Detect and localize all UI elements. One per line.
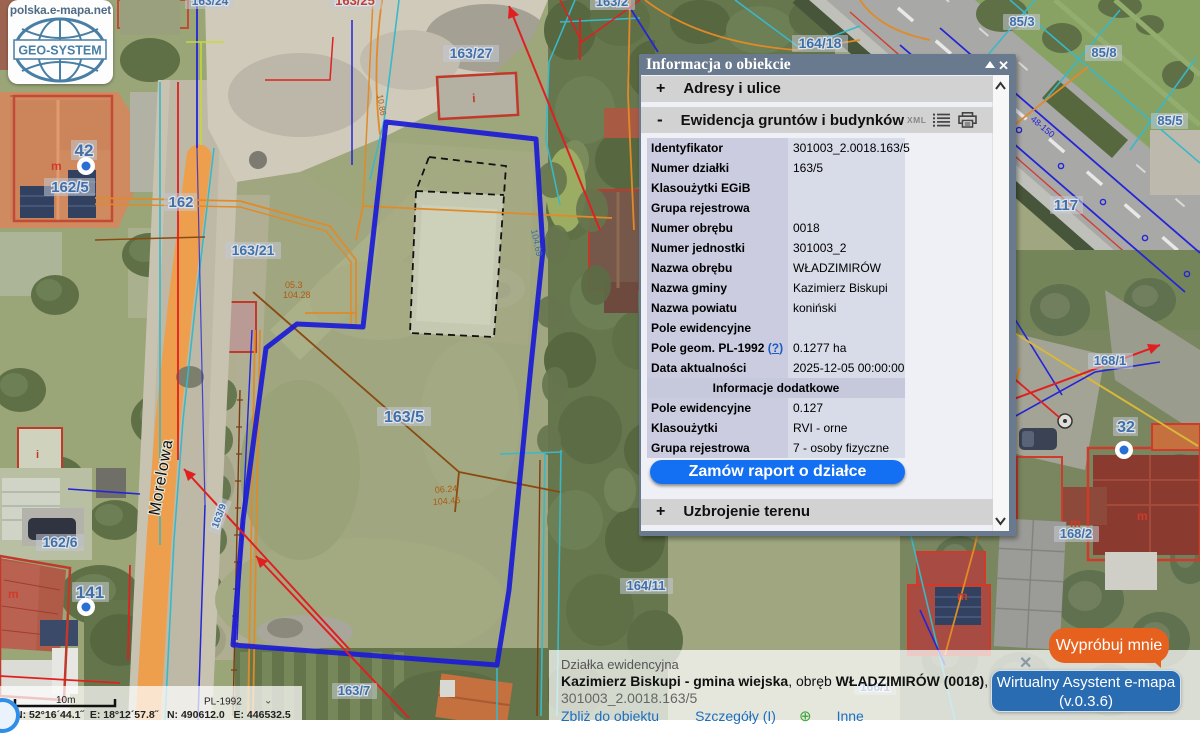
svg-text:m: m — [51, 159, 62, 173]
svg-text:85/5: 85/5 — [1157, 113, 1182, 128]
svg-text:⌄: ⌄ — [264, 696, 272, 707]
svg-text:162/6: 162/6 — [42, 534, 77, 550]
svg-text:117: 117 — [1054, 197, 1078, 214]
svg-text:163/7: 163/7 — [338, 683, 371, 698]
svg-text:42: 42 — [75, 141, 94, 160]
svg-text:164/18: 164/18 — [799, 35, 842, 51]
svg-text:10m: 10m — [56, 695, 75, 706]
svg-text:32: 32 — [1117, 419, 1135, 436]
svg-text:162: 162 — [168, 194, 193, 211]
svg-text:06.24: 06.24 — [434, 483, 457, 495]
svg-text:i: i — [36, 449, 39, 461]
svg-text:GEO-SYSTEM: GEO-SYSTEM — [18, 44, 101, 58]
svg-text:m: m — [1070, 516, 1081, 530]
svg-text:163/5: 163/5 — [384, 409, 424, 426]
svg-text:PL-1992: PL-1992 — [204, 697, 242, 708]
svg-text:104.46: 104.46 — [432, 495, 460, 507]
svg-text:163/24: 163/24 — [192, 0, 229, 8]
svg-text:164/11: 164/11 — [626, 578, 665, 593]
svg-text:m: m — [1137, 509, 1148, 523]
svg-text:163/25: 163/25 — [335, 0, 375, 8]
svg-text:168/1: 168/1 — [1094, 353, 1127, 368]
svg-text:85/3: 85/3 — [1009, 14, 1034, 29]
svg-text:163/2: 163/2 — [596, 0, 629, 9]
svg-text:m: m — [957, 589, 968, 603]
svg-text:104.28: 104.28 — [283, 290, 311, 300]
svg-text:05.3: 05.3 — [285, 280, 303, 290]
svg-text:m: m — [8, 587, 19, 601]
svg-text:85/8: 85/8 — [1091, 45, 1116, 60]
svg-text:163/27: 163/27 — [450, 45, 493, 61]
svg-text:163/21: 163/21 — [232, 242, 275, 258]
svg-text:162/5: 162/5 — [51, 179, 89, 196]
